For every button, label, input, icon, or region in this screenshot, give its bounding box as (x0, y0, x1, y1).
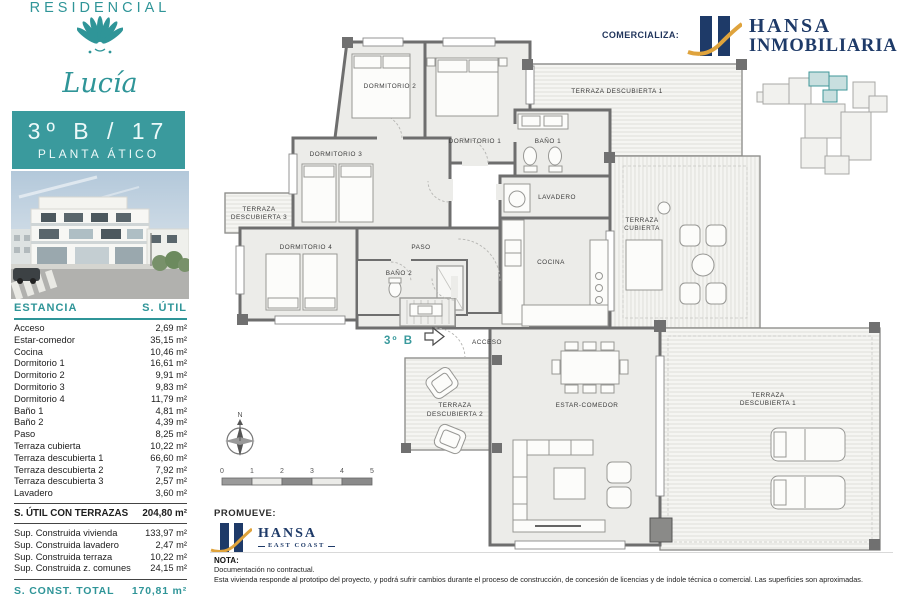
shell-logo-icon (77, 12, 123, 61)
label-dormitorio-3: DORMITORIO 3 (310, 151, 363, 158)
nota-title: NOTA: (214, 556, 890, 565)
table-row: Terraza descubierta 166,60 m² (14, 453, 187, 465)
table-row: Terraza descubierta 27,92 m² (14, 465, 187, 477)
brand-residencial: RESIDENCIAL (0, 0, 200, 16)
svg-text:1: 1 (250, 468, 254, 475)
key-plan (757, 72, 887, 174)
label-dormitorio-2: DORMITORIO 2 (364, 83, 417, 90)
label-dormitorio-4: DORMITORIO 4 (280, 244, 333, 251)
table-row: Sup. Construida vivienda133,97 m² (14, 528, 187, 540)
table-row: Sup. Construida z. comunes24,15 m² (14, 563, 187, 575)
table-row: Dormitorio 116,61 m² (14, 358, 187, 370)
table-row: Terraza descubierta 32,57 m² (14, 476, 187, 488)
svg-text:3: 3 (310, 468, 314, 475)
table-row: Sup. Construida terraza10,22 m² (14, 552, 187, 564)
label-terraza-descubierta-3: TERRAZA (242, 206, 276, 213)
label-terraza-descubierta-2: TERRAZA (438, 402, 472, 409)
hansa-east-coast: EAST COAST (258, 543, 335, 550)
rule-right (328, 546, 335, 547)
svg-text:5: 5 (370, 468, 374, 475)
table-row: Dormitorio 29,91 m² (14, 370, 187, 382)
building-photo (11, 171, 189, 299)
total-row: S. CONST. TOTAL 170,81 m² (14, 579, 187, 597)
table-row: Estar-comedor35,15 m² (14, 335, 187, 347)
table-header: ESTANCIA S. ÚTIL (14, 302, 187, 320)
label-acceso: ACCESO (472, 339, 502, 346)
hansa-name: HANSA (258, 527, 335, 541)
subtotal-row: S. ÚTIL CON TERRAZAS 204,80 m² (14, 503, 187, 524)
unit-title: 3º B / 17 (12, 118, 185, 145)
hansa-logo-icon (210, 520, 252, 556)
label-cocina: COCINA (537, 259, 565, 266)
label-terraza-descubierta-3-2: DESCUBIERTA 3 (231, 214, 287, 221)
unit-banner: 3º B / 17 PLANTA ÁTICO (12, 111, 185, 169)
label-bano-1: BAÑO 1 (535, 136, 561, 145)
label-paso: PASO (411, 244, 430, 251)
nota-line2: Esta vivienda responde al prototipo del … (214, 575, 890, 585)
table-row: Acceso2,69 m² (14, 323, 187, 335)
label-bano-2: BAÑO 2 (386, 268, 412, 277)
table-row: Dormitorio 411,79 m² (14, 394, 187, 406)
built-rows: Sup. Construida vivienda133,97 m² Sup. C… (14, 528, 187, 575)
label-dormitorio-1: DORMITORIO 1 (449, 138, 502, 145)
label-terraza-descubierta-1-top: TERRAZA DESCUBIERTA 1 (571, 88, 663, 95)
unit-marker-label: 3º B (384, 335, 414, 347)
col-sutil: S. ÚTIL (142, 302, 187, 314)
nota-block: NOTA: Documentación no contractual. Esta… (214, 556, 890, 585)
brand-lucia: Lucía (0, 68, 200, 99)
table-row: Paso8,25 m² (14, 429, 187, 441)
floor-plan: DORMITORIO 2 DORMITORIO 1 DORMITORIO 3 D… (205, 26, 895, 579)
scale-bar: 0 1 2 3 4 5 (220, 468, 374, 485)
label-estar-comedor: ESTAR-COMEDOR (556, 402, 619, 409)
nota-line1: Documentación no contractual. (214, 565, 890, 575)
svg-text:0: 0 (220, 468, 224, 475)
rule-left (258, 546, 265, 547)
label-terraza-descubierta-1-right: TERRAZA (751, 392, 785, 399)
table-row: Cocina10,46 m² (14, 347, 187, 359)
label-terraza-cubierta-2: CUBIERTA (624, 225, 660, 232)
promueve-label: PROMUEVE: (214, 508, 276, 519)
table-row: Sup. Construida lavadero2,47 m² (14, 540, 187, 552)
svg-text:4: 4 (340, 468, 344, 475)
table-row: Terraza cubierta10,22 m² (14, 441, 187, 453)
label-terraza-descubierta-2-2: DESCUBIERTA 2 (427, 411, 483, 418)
compass-north-label: N (237, 412, 242, 419)
hansa-east-coast-logo: HANSA EAST COAST (210, 520, 335, 556)
label-lavadero: LAVADERO (538, 194, 576, 201)
table-row: Dormitorio 39,83 m² (14, 382, 187, 394)
table-rows: Acceso2,69 m² Estar-comedor35,15 m² Coci… (14, 323, 187, 500)
table-row: Baño 14,81 m² (14, 406, 187, 418)
svg-text:2: 2 (280, 468, 284, 475)
footer-divider (210, 552, 893, 553)
table-row: Baño 24,39 m² (14, 417, 187, 429)
compass-icon: N (225, 412, 255, 456)
label-terraza-cubierta: TERRAZA (625, 217, 659, 224)
table-row: Lavadero3,60 m² (14, 488, 187, 500)
areas-table: ESTANCIA S. ÚTIL Acceso2,69 m² Estar-com… (14, 302, 187, 597)
col-estancia: ESTANCIA (14, 302, 77, 314)
label-terraza-descubierta-1-right-2: DESCUBIERTA 1 (740, 400, 796, 407)
unit-arrow-icon (425, 328, 444, 345)
unit-subtitle: PLANTA ÁTICO (12, 147, 185, 161)
brochure-page: RESIDENCIAL Lucía 3º B / 17 PLANTA ÁTICO (0, 0, 900, 600)
